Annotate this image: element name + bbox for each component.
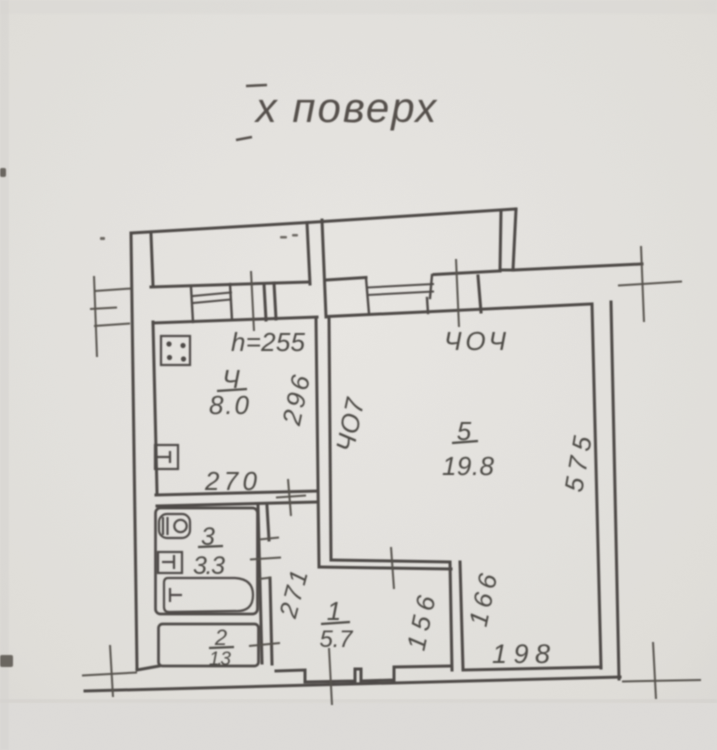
svg-text:ЧОЧ: ЧОЧ — [444, 326, 506, 356]
svg-text:19.8: 19.8 — [442, 451, 495, 481]
svg-text:5.7: 5.7 — [320, 626, 355, 653]
svg-text:h=255: h=255 — [231, 327, 306, 357]
svg-text:х поверх: х поверх — [254, 84, 438, 131]
svg-text:1: 1 — [327, 596, 341, 626]
svg-text:1.3: 1.3 — [209, 649, 231, 670]
svg-text:3.3: 3.3 — [193, 552, 225, 580]
svg-text:270: 270 — [204, 466, 258, 496]
svg-text:198: 198 — [492, 639, 550, 669]
svg-text:2: 2 — [214, 625, 227, 650]
svg-text:8.0: 8.0 — [209, 390, 250, 420]
